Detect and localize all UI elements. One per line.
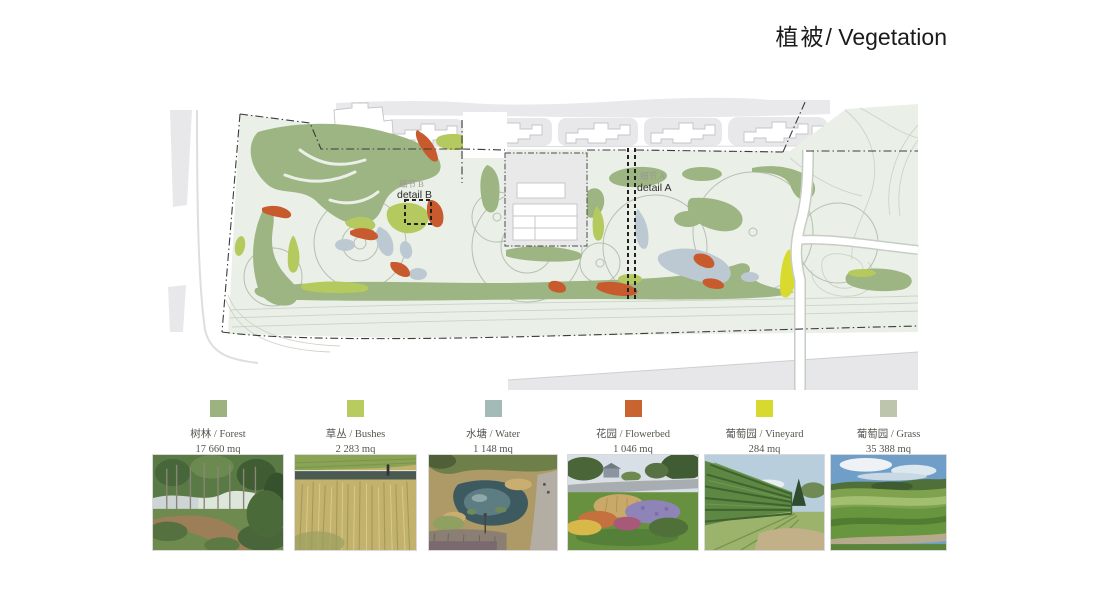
photo-bushes [294,454,417,551]
legend-swatch-forest [210,400,227,417]
detail-b-label-zh: 细节 B [399,179,424,189]
legend-item-forest: 树林 / Forest 17 660 mq [152,400,284,455]
detail-b-label-en: detail B [397,189,432,201]
legend-item-bushes: 草丛 / Bushes 2 283 mq [294,400,417,455]
legend-swatch-vineyard [756,400,773,417]
slide: 植被/ Vegetation [0,0,1099,604]
legend-item-grass: 葡萄园 / Grass 35 388 mq [830,400,947,455]
legend-item-vineyard: 葡萄园 / Vineyard 284 mq [704,400,825,455]
legend-label-bushes: 草丛 / Bushes [294,426,417,441]
photo-forest [152,454,284,551]
legend-label-vineyard: 葡萄园 / Vineyard [704,426,825,441]
photo-flowerbed [567,454,699,551]
legend-item-flowerbed: 花园 / Flowerbed 1 046 mq [567,400,699,455]
legend-swatch-grass [880,400,897,417]
page-title-en: / Vegetation [826,24,948,50]
context-bottom-wedge [508,352,918,390]
legend-swatch-water [485,400,502,417]
legend-item-water: 水塘 / Water 1 148 mq [428,400,558,455]
legend-swatch-flowerbed [625,400,642,417]
legend-label-grass: 葡萄园 / Grass [830,426,947,441]
legend-label-flowerbed: 花园 / Flowerbed [567,426,699,441]
page-title-zh: 植被 [776,25,826,50]
photo-grass [830,454,947,551]
page-title: 植被/ Vegetation [776,18,948,52]
legend-label-water: 水塘 / Water [428,426,558,441]
photo-vineyard [704,454,825,551]
legend-swatch-bushes [347,400,364,417]
photo-water [428,454,558,551]
vegetation-site-plan: 细节 A detail A 细节 B detail B [150,93,950,390]
detail-a-label-en: detail A [637,182,671,194]
legend-label-forest: 树林 / Forest [152,426,284,441]
detail-a-label-zh: 细节 A [640,171,666,181]
